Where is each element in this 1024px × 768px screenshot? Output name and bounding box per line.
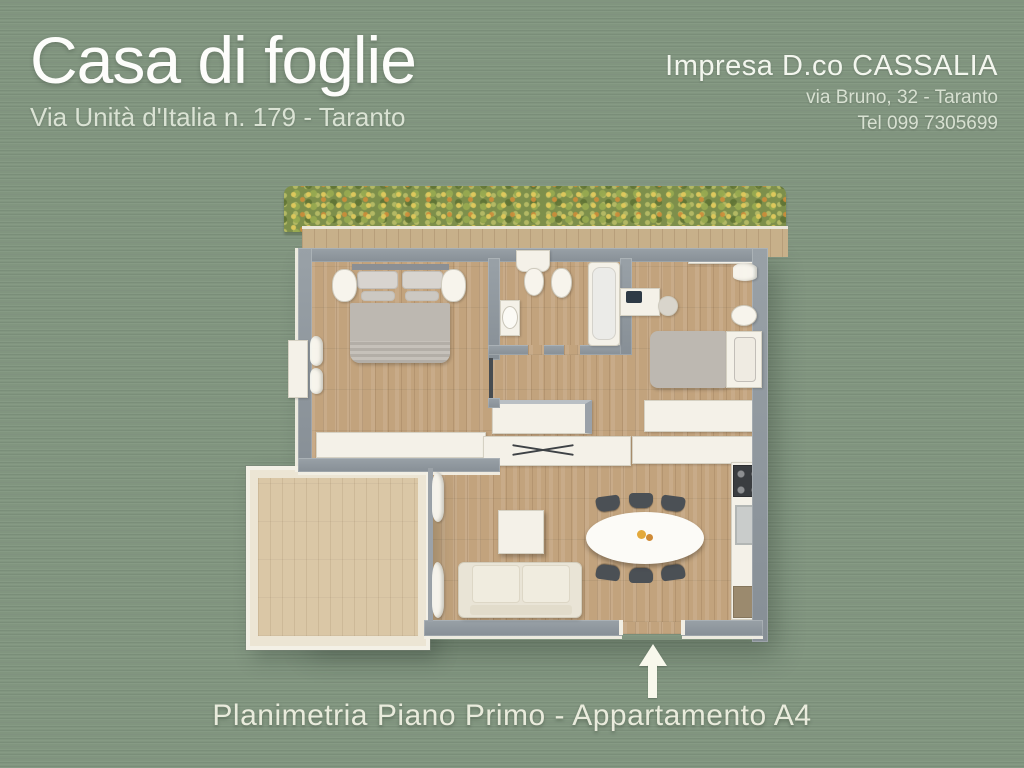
nightstand [332,269,357,302]
master-curtain [310,336,323,366]
table-decor [646,534,653,541]
hall-door-gap [564,345,580,355]
master-curtain [310,368,323,394]
coffee-table [498,510,544,554]
sofa-cushion [472,565,520,603]
wall-bathroom-bottom [488,345,632,355]
dining-table [586,512,704,564]
washbasin [502,306,518,329]
balcony-deck-floor [258,478,418,636]
single-bed-duvet [650,331,726,388]
wall-right [752,248,768,642]
bathtub-inner [592,267,616,340]
bed-pillow [357,271,398,289]
plan-caption: Planimetria Piano Primo - Appartamento A… [0,699,1024,733]
sofa-back [470,605,572,615]
brand-block: Casa di foglie Via Unità d'Italia n. 179… [30,26,416,133]
sofa-cushion [522,565,570,603]
dining-chair [629,493,653,508]
single-bed-pillow [734,337,756,382]
master-window [288,340,308,398]
company-info: Impresa D.co CASSALIA via Bruno, 32 - Ta… [665,50,998,135]
bed-pillow-small [405,291,439,301]
bed-pillow [402,271,443,289]
master-wardrobe [316,432,486,458]
entrance-threshold [622,622,682,634]
listing-title: Casa di foglie [30,26,416,95]
laptop [626,291,642,303]
bedroom2-wardrobe [644,400,764,432]
balcony [246,466,430,650]
company-address: via Bruno, 32 - Taranto [665,87,998,109]
toilet [551,268,572,298]
bidet [524,268,544,296]
bedroom2-curtain [733,263,757,281]
dining-chair [629,568,653,583]
double-bed-blanket-fold [350,341,450,363]
master-door-leaf [489,358,493,398]
wall-bottom-right [682,620,763,636]
bathroom-door-gap [528,345,544,355]
wall-master-bottom [298,458,500,472]
bed-pillow-small [361,291,395,301]
entrance-door-post [619,620,623,635]
living-sideboard [632,436,763,464]
living-curtain [432,562,444,618]
wall-master-divider-stub [488,398,500,408]
listing-address: Via Unità d'Italia n. 179 - Taranto [30,102,416,133]
company-phone: Tel 099 7305699 [665,113,998,135]
hall-closet [492,400,592,434]
pouf [731,305,757,326]
double-bed-headboard [352,264,449,270]
desk-chair [658,296,678,316]
living-curtain [432,472,444,522]
table-decor [637,530,646,539]
wall-bottom-left [424,620,622,636]
entrance-door-post [681,620,685,635]
company-name: Impresa D.co CASSALIA [665,50,998,83]
nightstand [441,269,466,302]
real-estate-flyer: Casa di foglie Via Unità d'Italia n. 179… [0,0,1024,768]
arrow-shaft [648,664,657,698]
arrow-head [639,644,667,666]
